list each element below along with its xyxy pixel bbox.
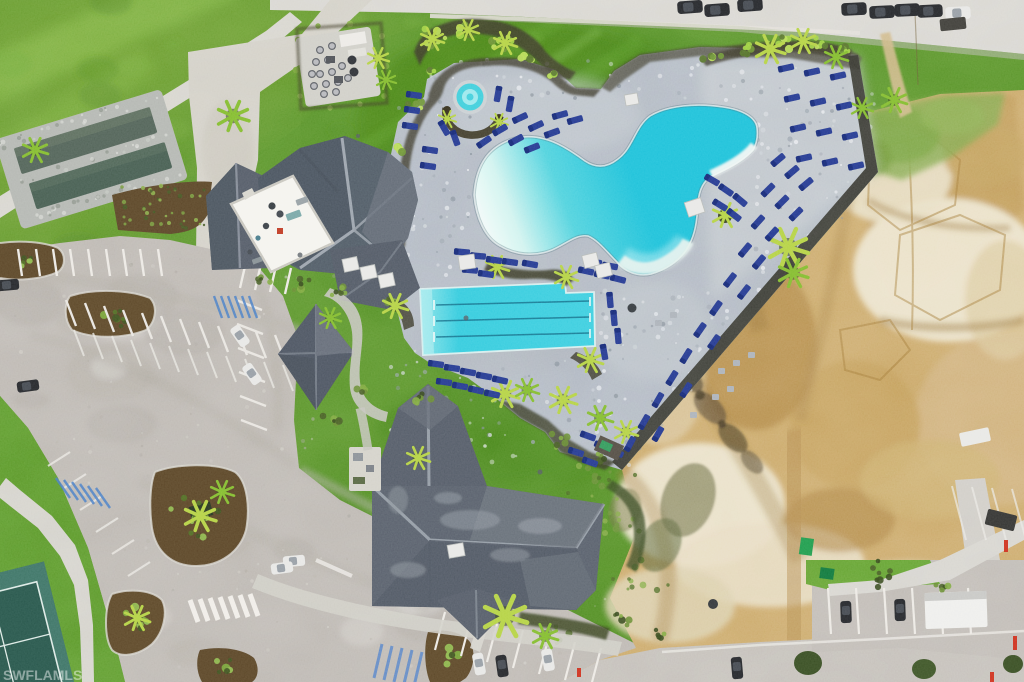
svg-text:SWFLAMLS: SWFLAMLS: [3, 667, 82, 682]
